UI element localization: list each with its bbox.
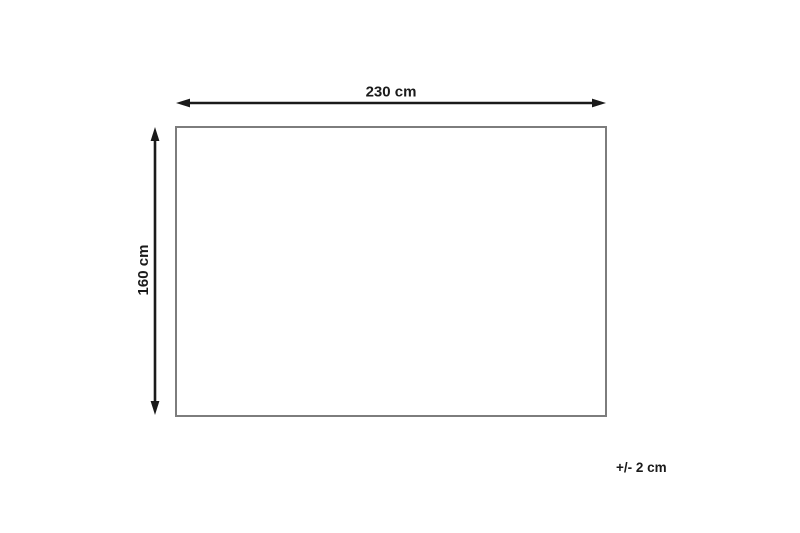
tolerance-label: +/- 2 cm	[616, 460, 667, 475]
arrowhead-left-icon	[176, 99, 190, 108]
width-dimension-arrow-icon	[176, 96, 606, 110]
product-outline	[175, 126, 607, 417]
arrowhead-right-icon	[592, 99, 606, 108]
arrowhead-up-icon	[151, 127, 160, 141]
arrowhead-down-icon	[151, 401, 160, 415]
height-dimension-arrow-icon	[148, 127, 162, 415]
dimension-diagram: 230 cm 160 cm +/- 2 cm	[0, 0, 800, 533]
